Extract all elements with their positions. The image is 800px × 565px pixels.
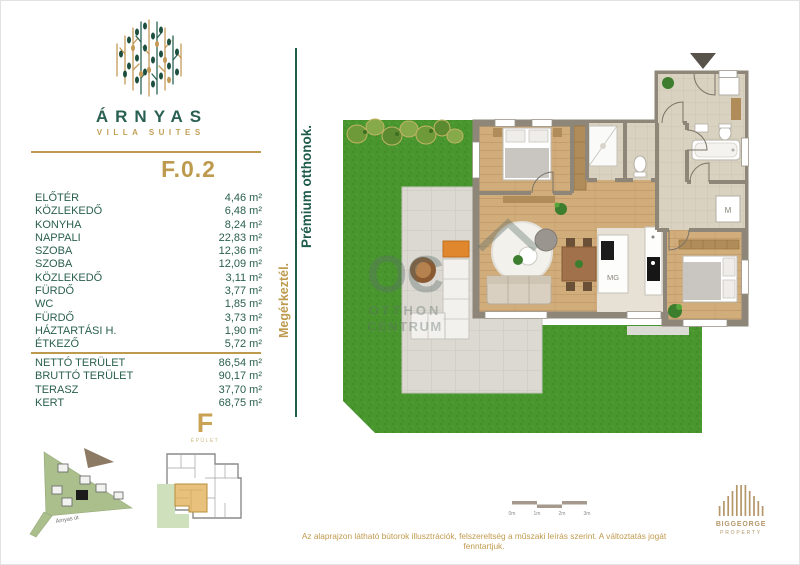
room-row: NAPPALI22,83 m² <box>35 232 262 245</box>
room-area: 3,11 m² <box>226 272 262 285</box>
room-row: WC1,85 m² <box>35 298 262 311</box>
tagline-primary: Megérkeztél. <box>277 263 291 338</box>
washing-machine-label: M <box>725 206 732 215</box>
room-area: 1,90 m² <box>225 325 262 338</box>
room-label: HÁZTARTÁSI H. <box>35 325 117 338</box>
total-row: BRUTTÓ TERÜLET90,17 m² <box>35 370 262 383</box>
room-row: FÜRDŐ3,73 m² <box>35 312 262 325</box>
room-row: ÉTKEZŐ5,72 m² <box>35 338 262 351</box>
vertical-divider-line <box>295 48 297 417</box>
room-label: FÜRDŐ <box>35 285 74 298</box>
room-row: KÖZLEKEDŐ3,11 m² <box>35 272 262 285</box>
entrance-arrow-icon <box>690 53 716 69</box>
divider-rule-bottom <box>31 352 261 354</box>
watermark-monogram: OC <box>367 246 443 304</box>
disclaimer-text: Az alaprajzon látható bútorok illusztrác… <box>300 531 668 551</box>
room-area: 1,85 m² <box>225 298 262 311</box>
total-label: BRUTTÓ TERÜLET <box>35 370 133 383</box>
kitchen-island-label: MG <box>607 273 619 282</box>
scale-bar-segments <box>512 501 587 508</box>
room-area: 12,09 m² <box>219 258 262 271</box>
total-label: NETTÓ TERÜLET <box>35 357 125 370</box>
room-area: 6,48 m² <box>225 205 262 218</box>
room-label: KÖZLEKEDŐ <box>35 205 102 218</box>
site-plan: Árnyas út <box>28 442 153 539</box>
brand-logo <box>35 14 262 111</box>
watermark-line1: OTTHON <box>369 303 442 318</box>
room-row: KONYHA8,24 m² <box>35 219 262 232</box>
room-area: 4,46 m² <box>225 192 262 205</box>
room-label: ÉTKEZŐ <box>35 338 79 351</box>
room-row: FÜRDŐ3,77 m² <box>35 285 262 298</box>
site-plan-road <box>30 512 52 537</box>
outside-paving-strip <box>627 326 689 335</box>
scale-label: 3m <box>584 511 591 517</box>
room-area: 5,72 m² <box>225 338 262 351</box>
floor-plan-drawing: M MG <box>335 30 765 440</box>
room-label: FÜRDŐ <box>35 312 74 325</box>
room-label: KONYHA <box>35 219 81 232</box>
room-label: NAPPALI <box>35 232 81 245</box>
tree-circle-logo-icon <box>99 14 199 106</box>
developer-logo-icon <box>720 485 763 516</box>
room-row: KÖZLEKEDŐ6,48 m² <box>35 205 262 218</box>
room-label: SZOBA <box>35 258 72 271</box>
room-row: SZOBA12,36 m² <box>35 245 262 258</box>
developer-logo-line1: BIGGEORGE <box>716 521 766 528</box>
sidebar: ÁRNYAS VILLA SUITES F.0.2 ELŐTÉR4,46 m² … <box>35 0 262 565</box>
bedroom2-furniture <box>679 240 739 302</box>
site-plan-neighbor-parcel <box>84 448 114 468</box>
total-label: TERASZ <box>35 384 78 397</box>
room-label: WC <box>35 298 53 311</box>
total-area: 86,54 m² <box>219 357 262 370</box>
developer-logo-line2: PROPERTY <box>720 530 762 536</box>
room-label: SZOBA <box>35 245 72 258</box>
room-area-list: ELŐTÉR4,46 m² KÖZLEKEDŐ6,48 m² KONYHA8,2… <box>35 192 262 352</box>
total-label: KERT <box>35 397 64 410</box>
total-row: TERASZ37,70 m² <box>35 384 262 397</box>
scale-bar: 0m 1m 2m 3m <box>503 497 598 519</box>
unit-code: F.0.2 <box>75 156 302 183</box>
room-area: 3,73 m² <box>225 312 262 325</box>
tagline-secondary: Prémium otthonok. <box>299 125 314 248</box>
scale-label: 1m <box>534 511 541 517</box>
room-area: 8,24 m² <box>225 219 262 232</box>
street-label: Árnyas út <box>55 514 80 525</box>
room-area: 12,36 m² <box>219 245 262 258</box>
divider-rule-top <box>31 151 261 153</box>
watermark-line2: CENTRUM <box>367 319 443 334</box>
scale-label: 0m <box>509 511 516 517</box>
total-area: 37,70 m² <box>219 384 262 397</box>
floor-plan-sheet: ÁRNYAS VILLA SUITES F.0.2 ELŐTÉR4,46 m² … <box>0 0 800 565</box>
room-row: ELŐTÉR4,46 m² <box>35 192 262 205</box>
room-area: 22,83 m² <box>219 232 262 245</box>
room-row: SZOBA12,09 m² <box>35 258 262 271</box>
room-area: 3,77 m² <box>225 285 262 298</box>
total-area: 90,17 m² <box>219 370 262 383</box>
scale-label: 2m <box>559 511 566 517</box>
building-letter: F <box>125 408 285 439</box>
developer-logo: BIGGEORGE PROPERTY <box>710 476 772 538</box>
site-plan-highlighted-building <box>76 490 88 500</box>
totals-list: NETTÓ TERÜLET86,54 m² BRUTTÓ TERÜLET90,1… <box>35 357 262 410</box>
washing-machine: M <box>716 196 740 222</box>
room-label: ELŐTÉR <box>35 192 79 205</box>
room-label: KÖZLEKEDŐ <box>35 272 102 285</box>
brand-subtitle: VILLA SUITES <box>35 128 262 137</box>
brand-name: ÁRNYAS <box>35 107 262 127</box>
total-row: NETTÓ TERÜLET86,54 m² <box>35 357 262 370</box>
building-key-plan <box>155 448 250 532</box>
room-row: HÁZTARTÁSI H.1,90 m² <box>35 325 262 338</box>
